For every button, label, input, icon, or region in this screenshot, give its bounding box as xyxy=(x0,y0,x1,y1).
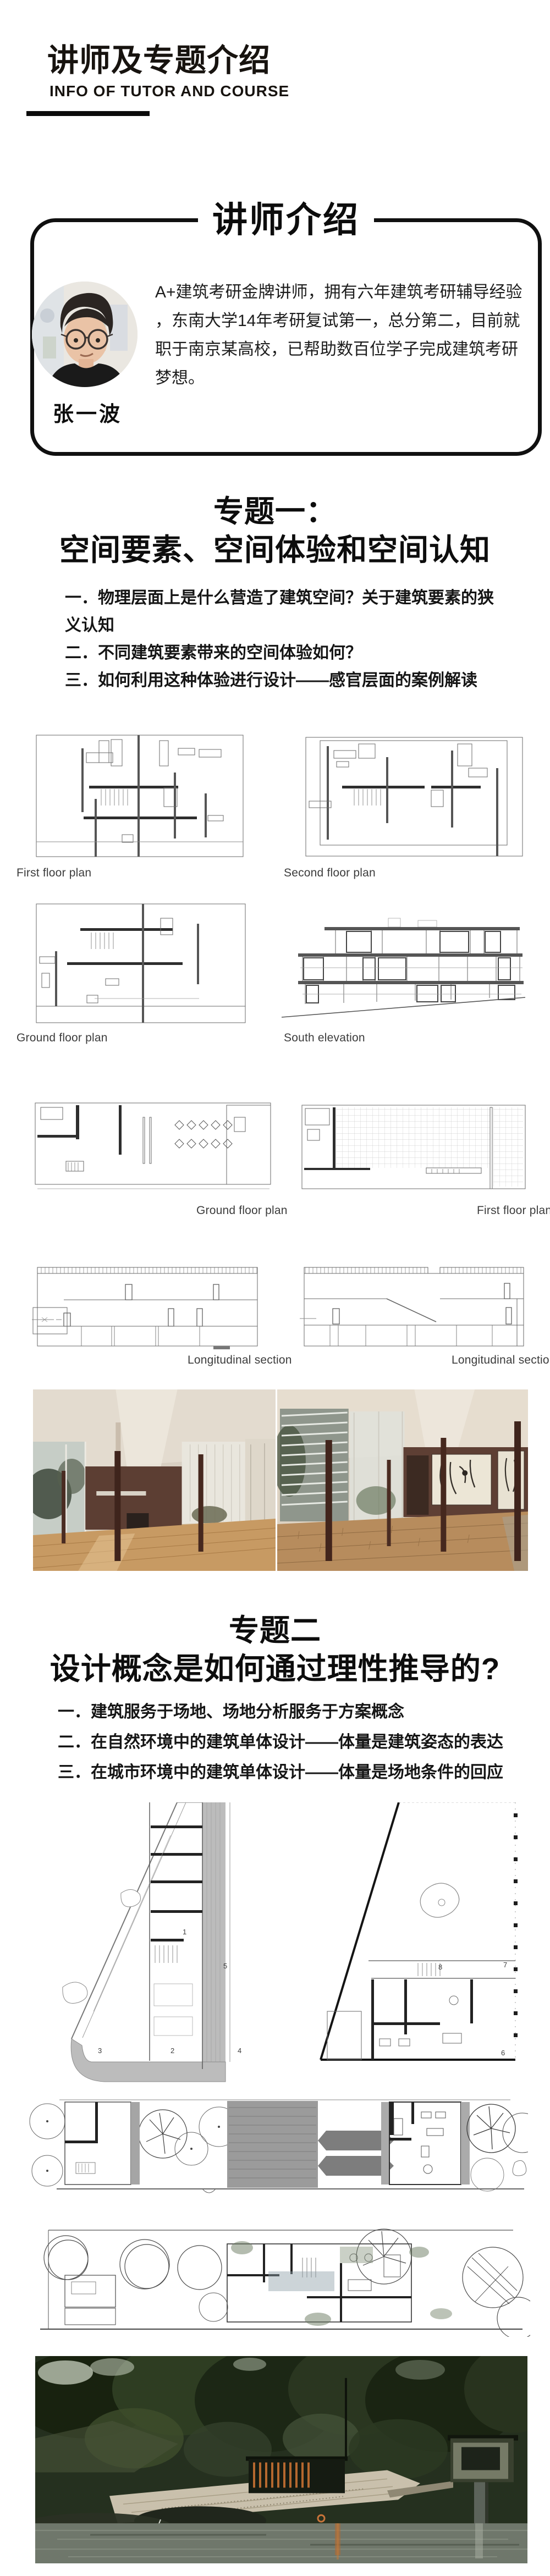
courtyard-ground-floor-plan-drawing xyxy=(33,1101,273,1195)
tutor-avatar xyxy=(32,282,137,387)
triangular-site-plan-left: 1 2 3 4 5 xyxy=(38,1802,290,2113)
interior-photo-right xyxy=(277,1389,528,1571)
triangular-site-plan-right: 6 7 8 xyxy=(316,1802,524,2087)
topic1-item-3: 三．如何利用这种体验进行设计——感官层面的案例解读 xyxy=(65,667,505,694)
topic2-item-2: 二．在自然环境中的建筑单体设计——体量是建筑姿态的表达 xyxy=(58,1727,526,1757)
tutor-bio-line: 梦想。 xyxy=(155,364,529,393)
topic2-item-3: 三．在城市环境中的建筑单体设计——体量是场地条件的回应 xyxy=(58,1757,526,1788)
caption-ground-floor-plan: Ground floor plan xyxy=(16,1031,108,1045)
topic2-outline-list: 一．建筑服务于场地、场地分析服务于方案概念 二．在自然环境中的建筑单体设计——体… xyxy=(58,1697,526,1788)
plan-room-number: 3 xyxy=(98,2047,102,2055)
plan-room-number: 7 xyxy=(503,1961,507,1969)
linear-site-plan-upper xyxy=(26,2097,528,2200)
page-title: 讲师及专题介绍 xyxy=(47,35,271,80)
riverside-building-photo xyxy=(35,2356,527,2563)
title-underline-bar xyxy=(26,111,150,116)
tutor-bio-line: ，东南大学14年考研复试第一，总分第二，目前就 xyxy=(155,307,529,335)
topic1-title-line1: 专题一： xyxy=(0,487,550,531)
page-subtitle: INFO OF TUTOR AND COURSE xyxy=(50,82,289,100)
topic1-title-line2: 空间要素、空间体验和空间认知 xyxy=(0,525,550,569)
caption-courtyard-first-floor-plan: First floor plan xyxy=(477,1204,550,1217)
first-floor-plan-drawing xyxy=(34,733,246,859)
caption-second-floor-plan: Second floor plan xyxy=(284,867,376,880)
plan-room-number: 2 xyxy=(170,2047,174,2055)
interior-photo-left xyxy=(33,1389,276,1571)
ground-floor-plan-drawing xyxy=(34,902,249,1025)
tutor-name: 张一波 xyxy=(53,397,122,427)
plan-room-number: 8 xyxy=(438,1963,442,1971)
plan-room-number: 1 xyxy=(183,1928,186,1936)
longitudinal-section-drawing-left xyxy=(32,1265,263,1352)
tutor-avatar-illustration xyxy=(32,282,137,387)
caption-courtyard-ground-floor-plan: Ground floor plan xyxy=(196,1204,288,1217)
plan-room-number: 6 xyxy=(501,2049,505,2057)
south-elevation-drawing xyxy=(280,917,526,1023)
topic1-outline-list: 一．物理层面上是什么营造了建筑空间？关于建筑要素的狭义认知 二．不同建筑要素带来… xyxy=(65,584,505,694)
topic1-item-1: 一．物理层面上是什么营造了建筑空间？关于建筑要素的狭义认知 xyxy=(65,584,505,639)
topic2-title-line1: 专题二 xyxy=(0,1606,550,1650)
tutor-section-title: 讲师介绍 xyxy=(198,192,374,242)
courtyard-first-floor-plan-drawing xyxy=(300,1103,527,1193)
topic2-title-line2: 设计概念是如何通过理性推导的? xyxy=(0,1644,550,1688)
caption-south-elevation: South elevation xyxy=(284,1031,365,1045)
second-floor-plan-drawing xyxy=(304,735,525,858)
tutor-bio-line: 职于南京某高校，已帮助数百位学子完成建筑考研 xyxy=(155,335,529,364)
topic1-item-2: 二．不同建筑要素带来的空间体验如何？ xyxy=(65,639,505,667)
tutor-bio-line: A+建筑考研金牌讲师，拥有六年建筑考研辅导经验 xyxy=(155,278,529,307)
plan-room-number: 5 xyxy=(223,1962,227,1970)
caption-longitudinal-section-left: Longitudinal section xyxy=(188,1354,292,1367)
caption-longitudinal-section-right: Longitudinal section xyxy=(452,1354,550,1367)
course-intro-poster: 讲师及专题介绍 INFO OF TUTOR AND COURSE 讲师介绍 xyxy=(0,0,550,2576)
plan-room-number: 4 xyxy=(238,2047,241,2055)
longitudinal-section-drawing-right xyxy=(300,1265,527,1352)
topic2-item-1: 一．建筑服务于场地、场地分析服务于方案概念 xyxy=(58,1697,526,1727)
caption-first-floor-plan: First floor plan xyxy=(16,867,91,880)
tutor-bio: A+建筑考研金牌讲师，拥有六年建筑考研辅导经验 ，东南大学14年考研复试第一，总… xyxy=(155,278,529,393)
linear-site-plan-lower xyxy=(32,2225,530,2337)
